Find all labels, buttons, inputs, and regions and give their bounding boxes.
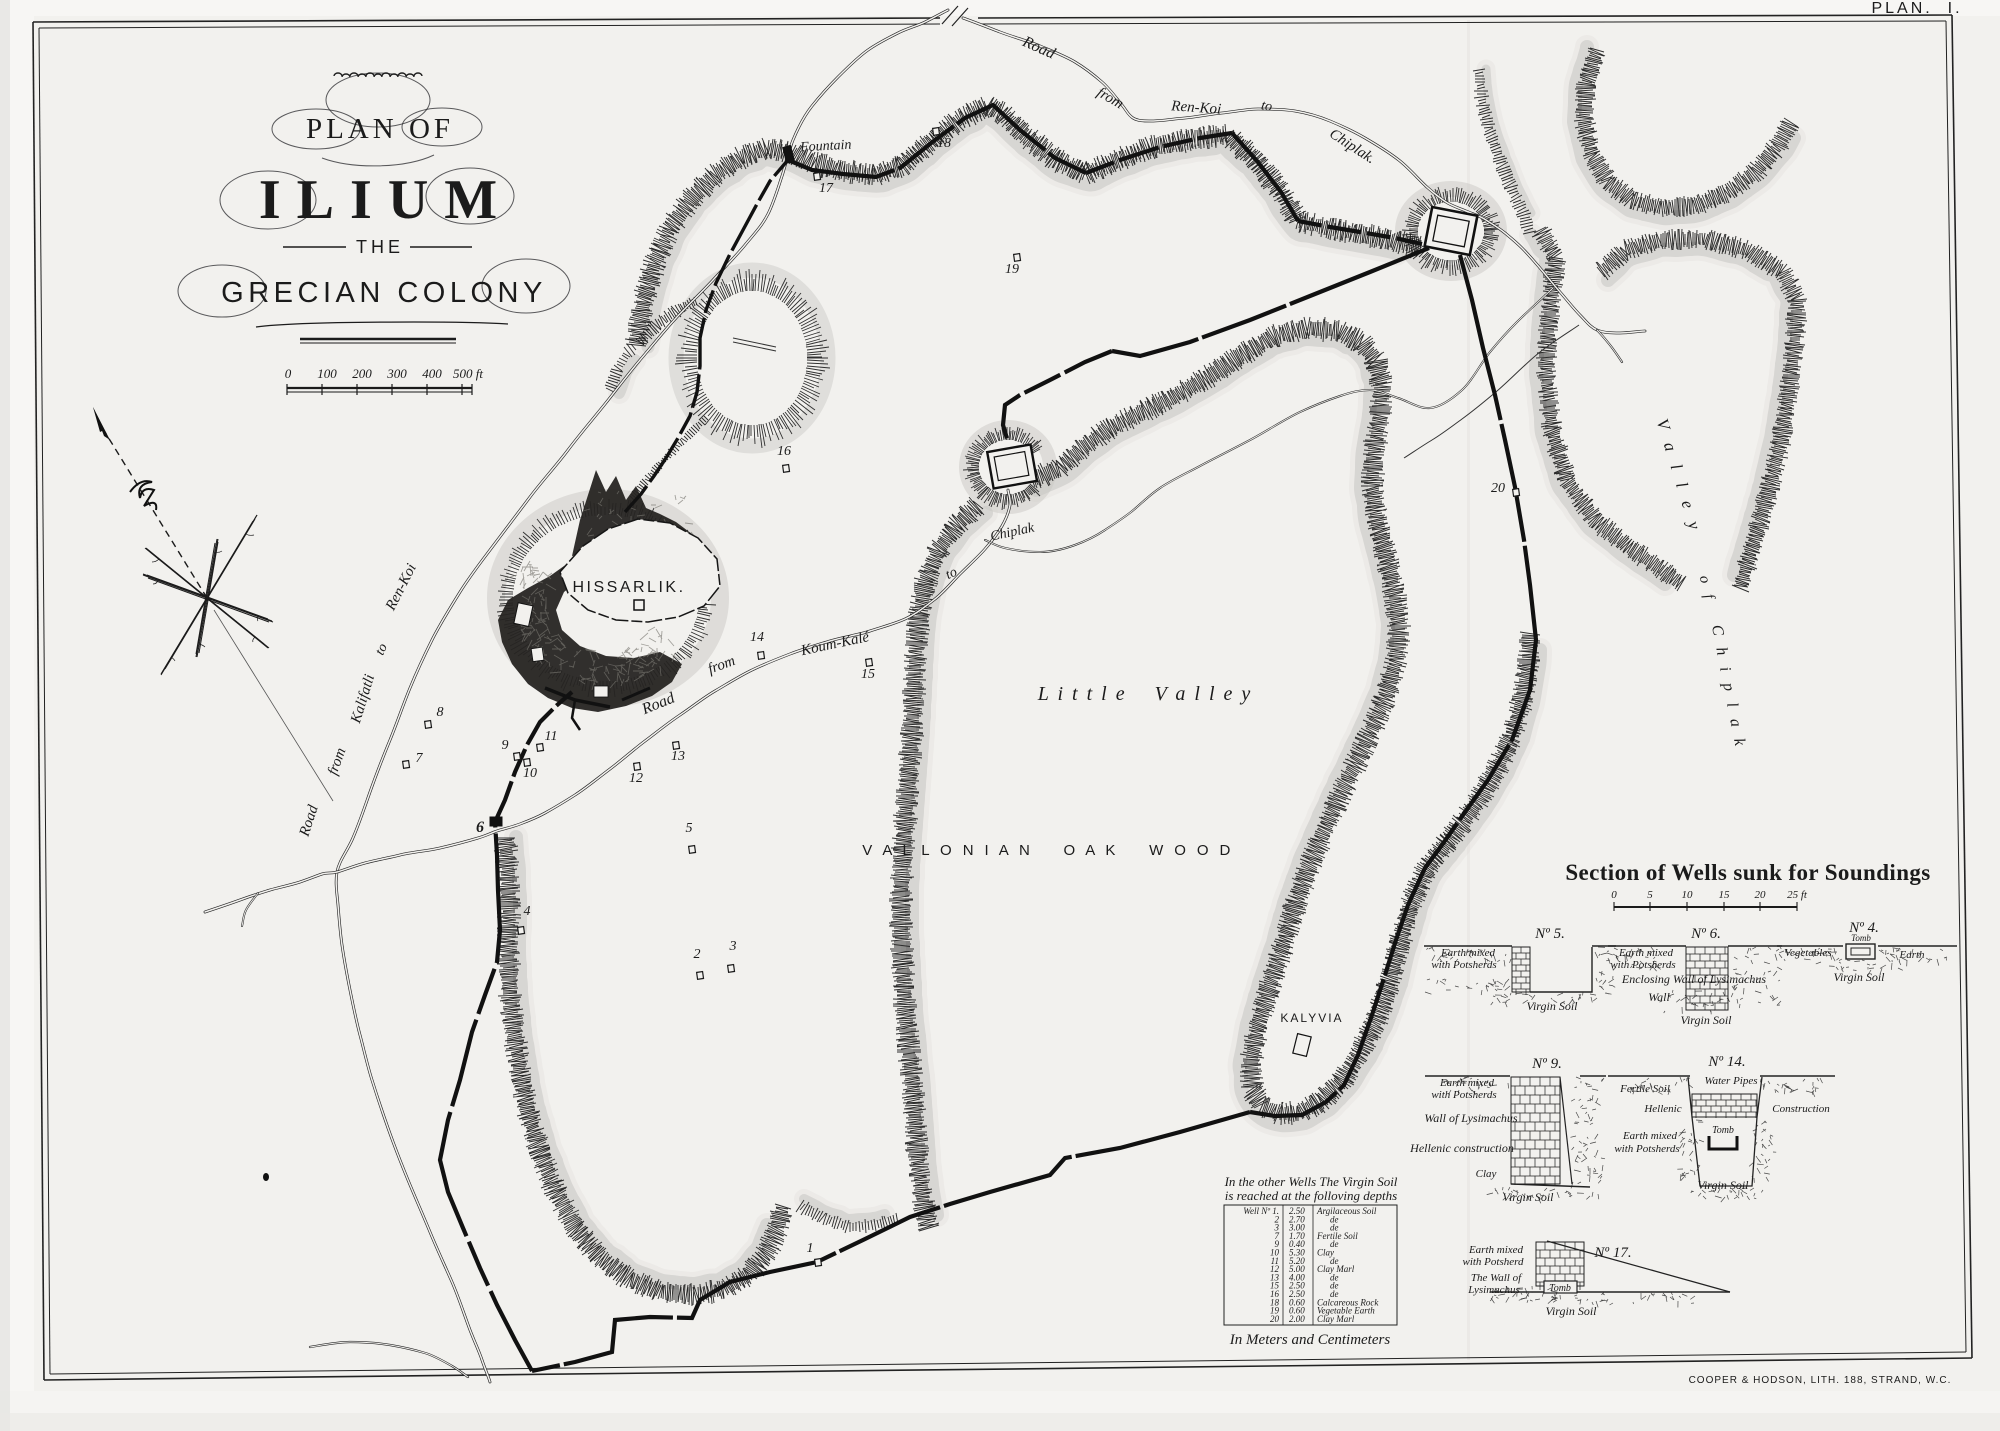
svg-text:200: 200: [352, 366, 372, 381]
svg-text:Nº 14.: Nº 14.: [1707, 1054, 1745, 1070]
svg-text:Virgin Soil: Virgin Soil: [1527, 999, 1579, 1013]
svg-text:4: 4: [524, 904, 531, 919]
svg-text:Wall: Wall: [1648, 990, 1670, 1004]
svg-text:16: 16: [777, 444, 791, 459]
svg-text:300: 300: [386, 366, 407, 381]
svg-text:Earth: Earth: [1898, 949, 1925, 961]
svg-text:20: 20: [1755, 889, 1767, 901]
svg-text:20: 20: [1270, 1314, 1280, 1324]
svg-text:10: 10: [523, 766, 537, 781]
svg-text:5: 5: [1647, 889, 1653, 901]
svg-text:1: 1: [807, 1241, 814, 1256]
svg-text:with Potsherd: with Potsherd: [1462, 1256, 1524, 1268]
svg-text:In the other Wells The Virgin: In the other Wells The Virgin Soil: [1224, 1174, 1398, 1189]
svg-text:Tomb: Tomb: [1712, 1125, 1734, 1136]
svg-text:with Potsherds: with Potsherds: [1431, 1089, 1496, 1101]
svg-text:9: 9: [502, 738, 509, 753]
svg-text:Nº 6.: Nº 6.: [1690, 926, 1721, 942]
svg-text:Virgin Soil: Virgin Soil: [1503, 1190, 1555, 1204]
svg-text:100: 100: [317, 366, 337, 381]
svg-text:11: 11: [545, 729, 558, 744]
svg-text:Earth mixed: Earth mixed: [1622, 1130, 1678, 1142]
svg-text:Section of Wells sunk for Soun: Section of Wells sunk for Soundings: [1565, 860, 1930, 885]
svg-text:25 ft: 25 ft: [1787, 889, 1808, 901]
svg-text:8: 8: [437, 705, 444, 720]
svg-text:KALYVIA: KALYVIA: [1280, 1011, 1343, 1025]
svg-text:Earth mixed: Earth mixed: [1618, 947, 1674, 959]
svg-text:10: 10: [1682, 889, 1694, 901]
svg-text:Virgin Soil: Virgin Soil: [1698, 1178, 1750, 1192]
svg-text:500 ft: 500 ft: [453, 366, 483, 381]
svg-text:PLAN. I.: PLAN. I.: [1871, 0, 1962, 17]
svg-text:Clay: Clay: [1476, 1168, 1497, 1180]
svg-text:400: 400: [422, 366, 442, 381]
svg-text:5: 5: [686, 821, 693, 836]
svg-text:Nº 9.: Nº 9.: [1531, 1056, 1562, 1072]
svg-text:3: 3: [729, 939, 737, 954]
svg-text:The Wall of: The Wall of: [1471, 1272, 1523, 1284]
svg-text:is reached at the folloving de: is reached at the folloving depths: [1225, 1188, 1397, 1203]
svg-text:19: 19: [1005, 262, 1019, 277]
svg-text:ILIUM: ILIUM: [259, 169, 513, 231]
svg-text:Virgin Soil: Virgin Soil: [1834, 970, 1886, 984]
svg-text:COOPER & HODSON, LITH. 188, ST: COOPER & HODSON, LITH. 188, STRAND, W.C.: [1689, 1375, 1952, 1386]
svg-text:THE: THE: [356, 237, 404, 257]
svg-text:0: 0: [285, 366, 292, 381]
svg-text:Earth mixed: Earth mixed: [1440, 947, 1496, 959]
svg-text:Fountain: Fountain: [799, 138, 852, 156]
svg-text:with Potsherds: with Potsherds: [1610, 959, 1675, 971]
svg-text:0: 0: [1611, 889, 1617, 901]
svg-text:HISSARLIK.: HISSARLIK.: [572, 579, 685, 596]
svg-text:Enclosing Wall of Lysimachus: Enclosing Wall of Lysimachus: [1621, 972, 1767, 986]
svg-text:2.00: 2.00: [1289, 1314, 1305, 1324]
svg-text:13: 13: [671, 749, 685, 764]
svg-text:12: 12: [629, 771, 643, 786]
svg-text:Water Pipes: Water Pipes: [1704, 1075, 1757, 1087]
svg-text:Virgin Soil: Virgin Soil: [1546, 1304, 1598, 1318]
svg-text:6: 6: [476, 819, 484, 836]
svg-text:18: 18: [937, 136, 951, 151]
svg-text:20: 20: [1491, 481, 1505, 496]
svg-text:V A L L O N I A N O A K: V A L L O N I A N O A K W O O D: [862, 842, 1233, 859]
svg-text:In Meters and Centimeters: In Meters and Centimeters: [1229, 1332, 1391, 1348]
svg-text:Argilaceous Soil: Argilaceous Soil: [1316, 1206, 1377, 1216]
svg-text:Construction: Construction: [1772, 1103, 1830, 1115]
svg-text:Vegetables: Vegetables: [1784, 947, 1831, 959]
svg-text:GRECIAN COLONY: GRECIAN COLONY: [221, 277, 547, 309]
svg-text:7: 7: [416, 751, 424, 766]
svg-text:15: 15: [861, 667, 875, 682]
svg-text:14: 14: [750, 630, 764, 645]
svg-text:Earth mixed: Earth mixed: [1468, 1244, 1524, 1256]
svg-text:with Potsherds: with Potsherds: [1431, 959, 1496, 971]
svg-text:Hellenic construction: Hellenic construction: [1409, 1141, 1514, 1155]
svg-text:Hellenic: Hellenic: [1643, 1103, 1681, 1115]
svg-text:Lysimachus: Lysimachus: [1467, 1284, 1520, 1296]
svg-text:with Potsherds: with Potsherds: [1614, 1143, 1679, 1155]
svg-text:L i t t l e V a l l e y: L i t t l e V a l l e y: [1037, 683, 1253, 705]
svg-text:2: 2: [694, 947, 701, 962]
svg-text:Virgin Soil: Virgin Soil: [1681, 1013, 1733, 1027]
svg-text:Clay Marl: Clay Marl: [1317, 1314, 1355, 1324]
svg-text:Wall of Lysimachus: Wall of Lysimachus: [1424, 1111, 1518, 1125]
svg-text:Tomb: Tomb: [1851, 933, 1871, 943]
svg-text:PLAN OF: PLAN OF: [306, 113, 454, 145]
svg-text:Tomb: Tomb: [1549, 1283, 1571, 1294]
svg-text:15: 15: [1719, 889, 1731, 901]
svg-text:Earth mixed: Earth mixed: [1439, 1077, 1495, 1089]
svg-text:17: 17: [819, 181, 834, 196]
svg-text:Fertile Soil: Fertile Soil: [1619, 1083, 1670, 1095]
svg-text:Nº 5.: Nº 5.: [1534, 926, 1565, 942]
